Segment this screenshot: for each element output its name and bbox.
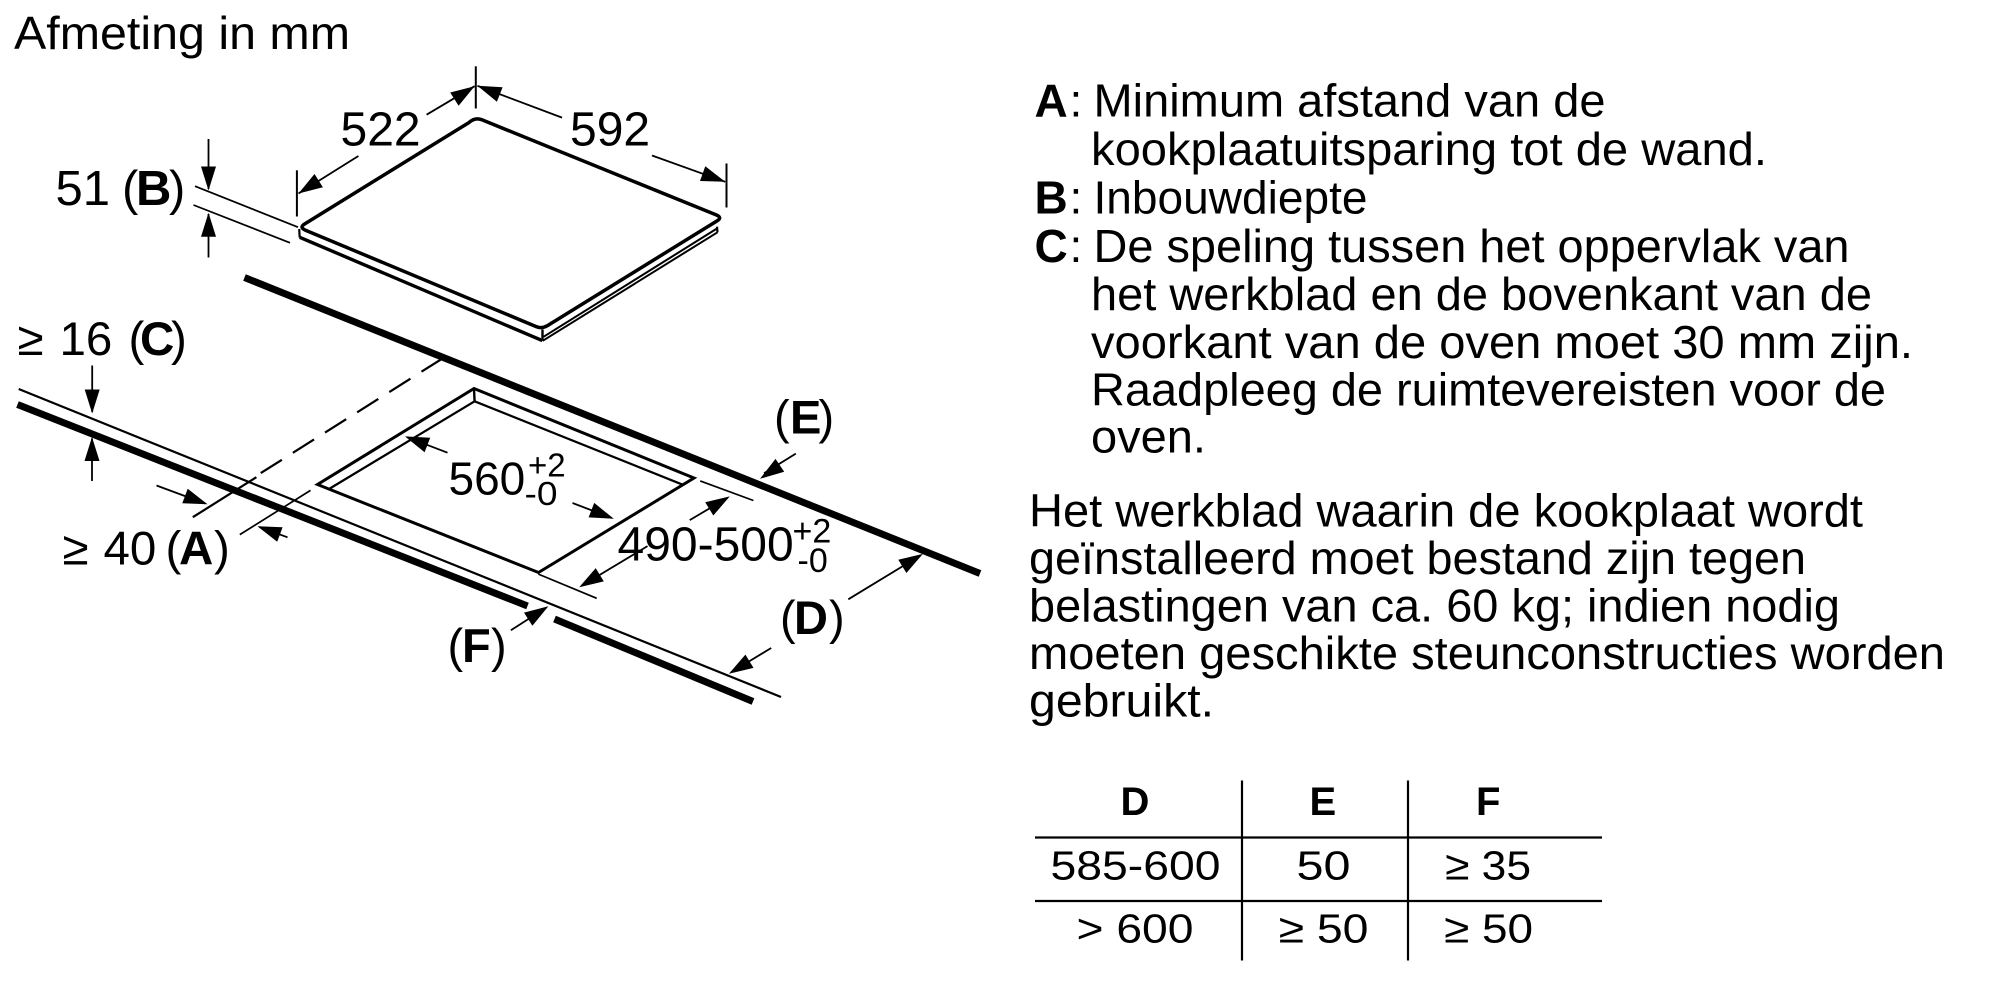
svg-text:(E): (E) [774, 391, 834, 444]
svg-text:≥16(C): ≥16(C) [18, 313, 187, 366]
svg-text:De speling tussen het oppervla: De speling tussen het oppervlak van [1094, 220, 1850, 272]
svg-text:F: F [1476, 780, 1500, 824]
svg-text:(D): (D) [780, 591, 845, 644]
svg-text:kookplaatuitsparing tot de wan: kookplaatuitsparing tot de wand. [1091, 123, 1767, 175]
svg-text:≥40(A): ≥40(A) [63, 523, 230, 576]
svg-text:(F): (F) [448, 619, 507, 672]
svg-text:490-500: 490-500 [618, 519, 794, 572]
svg-text:B: B [1035, 172, 1068, 224]
svg-text:Het werkblad waarin de kookpla: Het werkblad waarin de kookplaat wordt [1029, 485, 1863, 537]
svg-text:-0: -0 [798, 542, 828, 580]
svg-text:A: A [1035, 75, 1068, 127]
svg-text:560: 560 [449, 452, 526, 504]
svg-text:51(B): 51(B) [56, 162, 186, 216]
svg-text:585-600: 585-600 [1051, 843, 1221, 889]
svg-text:moeten geschikte steunconstruc: moeten geschikte steunconstructies worde… [1029, 627, 1945, 679]
svg-text:Inbouwdiepte: Inbouwdiepte [1094, 172, 1368, 224]
svg-text:592: 592 [570, 104, 650, 157]
svg-text:C: C [1035, 220, 1068, 272]
svg-text:≥ 50: ≥ 50 [1444, 906, 1533, 952]
svg-text:> 600: > 600 [1077, 906, 1194, 952]
svg-text:≥ 50: ≥ 50 [1279, 906, 1369, 952]
svg-text:50: 50 [1297, 843, 1351, 889]
svg-text:522: 522 [341, 104, 421, 157]
svg-text:Raadpleeg de ruimtevereisten v: Raadpleeg de ruimtevereisten voor de [1091, 364, 1886, 416]
svg-text:oven.: oven. [1091, 411, 1206, 463]
svg-text:het werkblad en de bovenkant v: het werkblad en de bovenkant van de [1091, 268, 1872, 320]
svg-text:D: D [1121, 780, 1150, 824]
svg-text:≥ 35: ≥ 35 [1445, 843, 1531, 889]
svg-text::: : [1070, 220, 1083, 272]
svg-text:-0: -0 [525, 475, 558, 512]
svg-text:gebruikt.: gebruikt. [1029, 675, 1214, 727]
svg-text:E: E [1310, 780, 1337, 824]
svg-text:Afmeting in mm: Afmeting in mm [14, 7, 350, 59]
svg-text::: : [1070, 172, 1083, 224]
svg-text:Minimum afstand van de: Minimum afstand van de [1094, 75, 1606, 127]
svg-text:belastingen van ca. 60 kg; ind: belastingen van ca. 60 kg; indien nodig [1029, 580, 1840, 632]
svg-text:voorkant van de oven moet 30 m: voorkant van de oven moet 30 mm zijn. [1091, 316, 1913, 368]
svg-text::: : [1070, 75, 1083, 127]
svg-text:geïnstalleerd moet bestand zij: geïnstalleerd moet bestand zijn tegen [1029, 532, 1806, 584]
